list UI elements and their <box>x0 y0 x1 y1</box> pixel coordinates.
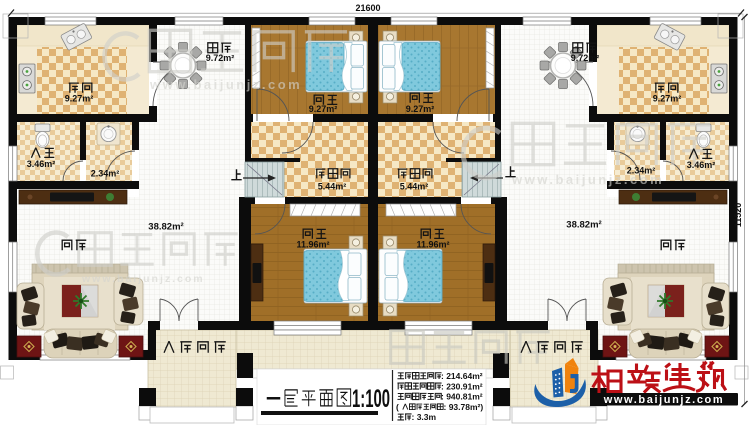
svg-text:: 3.3m: : 3.3m <box>412 412 437 422</box>
svg-text:: 940.81m²: : 940.81m² <box>441 392 483 402</box>
svg-text:21600: 21600 <box>355 3 380 13</box>
svg-text:38.82m²: 38.82m² <box>148 222 183 233</box>
svg-text:11.96m²: 11.96m² <box>416 240 449 250</box>
svg-text:9.72m²: 9.72m² <box>571 53 600 63</box>
svg-text:3.46m²: 3.46m² <box>27 159 56 169</box>
svg-text:: 93.78m²): : 93.78m²) <box>444 402 484 412</box>
svg-text:: 230.91m²: : 230.91m² <box>441 381 483 391</box>
svg-text:11520: 11520 <box>733 203 743 228</box>
svg-text:: 214.64m²: : 214.64m² <box>441 371 483 381</box>
svg-text:5.44m²: 5.44m² <box>318 182 347 192</box>
svg-text:9.27m²: 9.27m² <box>406 104 435 114</box>
svg-text:9.27m²: 9.27m² <box>309 104 338 114</box>
svg-text:www.baijunjz.com: www.baijunjz.com <box>81 273 205 285</box>
svg-text:2.34m²: 2.34m² <box>627 166 656 176</box>
svg-text:38.82m²: 38.82m² <box>566 220 601 231</box>
svg-text:9.72m²: 9.72m² <box>206 53 235 63</box>
svg-text:www.baijunjz.com: www.baijunjz.com <box>149 77 302 92</box>
svg-text:2.34m²: 2.34m² <box>91 169 120 179</box>
svg-text:11.96m²: 11.96m² <box>296 240 329 250</box>
svg-text:www.baijunjz.com: www.baijunjz.com <box>603 394 725 406</box>
svg-text:9.27m²: 9.27m² <box>653 94 682 104</box>
svg-text:5.44m²: 5.44m² <box>400 182 429 192</box>
svg-text:9.27m²: 9.27m² <box>65 94 94 104</box>
svg-text:1:100: 1:100 <box>352 385 390 413</box>
svg-text:3.46m²: 3.46m² <box>687 160 716 170</box>
svg-text:(: ( <box>396 402 399 412</box>
